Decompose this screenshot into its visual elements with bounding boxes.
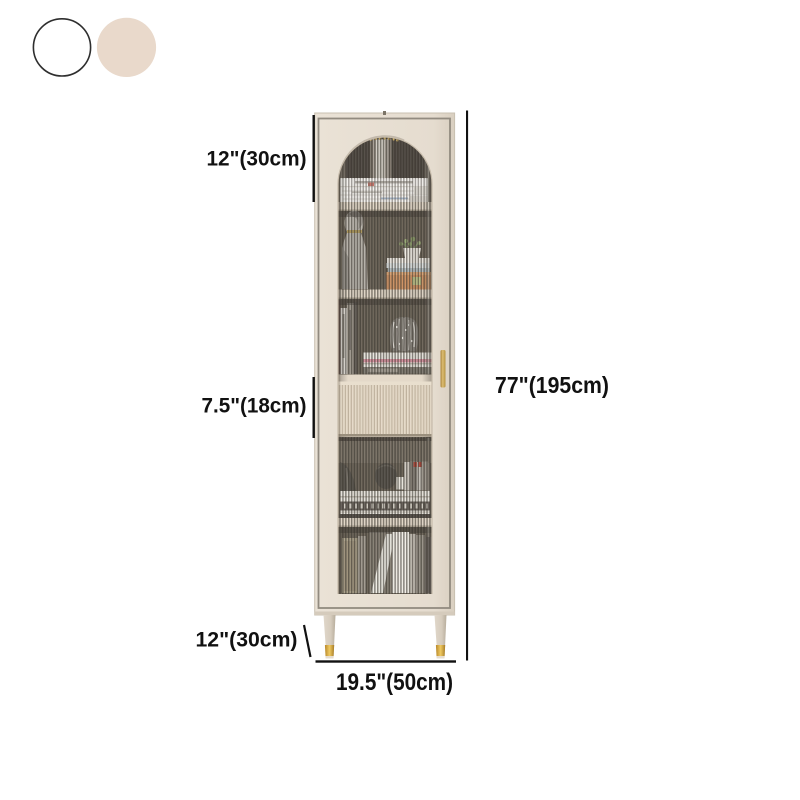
svg-text:77"(195cm): 77"(195cm) [495,372,609,398]
svg-text:7.5"(18cm): 7.5"(18cm) [202,394,307,418]
svg-text:12"(30cm): 12"(30cm) [207,146,307,170]
svg-text:19.5"(50cm): 19.5"(50cm) [336,669,453,696]
svg-text:12"(30cm): 12"(30cm) [196,628,298,652]
